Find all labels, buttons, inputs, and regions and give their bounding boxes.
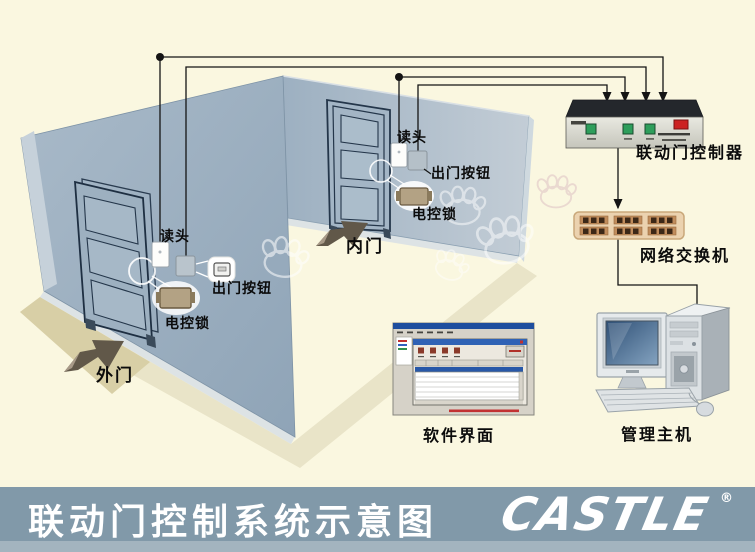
monitor-stand (618, 377, 646, 388)
scrollbar (519, 372, 523, 400)
footer-strip (0, 541, 755, 552)
window-titlebar (393, 323, 534, 329)
power-button (692, 342, 696, 346)
electric-lock-icon (396, 188, 432, 205)
label-outer-exit-button: 出门按钮 (212, 280, 272, 297)
list-header-row (415, 360, 523, 366)
drive-bay (670, 322, 698, 328)
controller-button-3 (645, 124, 655, 134)
exit-button-icon (408, 151, 427, 170)
controller-power-switch (674, 120, 688, 129)
footer-bar: 联动门控制系统示意图 CASTLE ® (0, 487, 755, 552)
status-strip (415, 401, 523, 405)
inner-door (327, 100, 391, 239)
label-network-switch: 网络交换机 (640, 246, 730, 265)
label-inner-reader: 读头 (397, 129, 427, 146)
interlock-door-diagram: 读头 出门按钮 电控锁 内门 读头 出门按钮 电控锁 外门 联动门控制器 网络交… (0, 0, 755, 487)
keyboard (596, 388, 700, 412)
label-controller: 联动门控制器 (636, 143, 744, 162)
card-reader-icon (152, 242, 169, 267)
label-inner-door: 内门 (346, 236, 384, 257)
controller-brand-mark (571, 121, 586, 125)
controller-button-1 (586, 124, 596, 134)
diagram-canvas: 读头 出门按钮 电控锁 内门 读头 出门按钮 电控锁 外门 联动门控制器 网络交… (0, 0, 755, 552)
controller-button-2 (623, 124, 633, 134)
wire-junction-dot (395, 73, 403, 81)
label-outer-door: 外门 (96, 365, 134, 386)
window-red-caption (449, 410, 519, 413)
management-host-computer (596, 304, 730, 416)
software-window-thumbnail (393, 323, 534, 415)
tower (666, 304, 730, 400)
network-switch-device (574, 212, 684, 239)
drive-bay (670, 331, 698, 337)
list-selected-row (415, 367, 523, 372)
label-inner-exit-button: 出门按钮 (431, 165, 491, 182)
label-software-ui: 软件界面 (423, 426, 495, 445)
child-window-titlebar (413, 339, 527, 345)
diagram-title: 联动门控制系统示意图 (28, 493, 438, 545)
monitor (597, 313, 667, 388)
label-outer-reader: 读头 (160, 228, 190, 245)
exit-button-icon (176, 256, 195, 276)
registered-trademark-icon: ® (720, 491, 733, 506)
list-area (415, 372, 523, 400)
controller-device (566, 100, 703, 148)
label-host: 管理主机 (621, 425, 693, 444)
label-outer-lock: 电控锁 (165, 315, 210, 332)
label-inner-lock: 电控锁 (412, 206, 457, 223)
card-reader-icon (391, 143, 407, 167)
wire-junction-dot (156, 53, 164, 61)
electric-lock-icon (156, 288, 195, 308)
brand-logo-text: CASTLE (496, 487, 714, 541)
brand-logo: CASTLE ® (502, 487, 747, 541)
